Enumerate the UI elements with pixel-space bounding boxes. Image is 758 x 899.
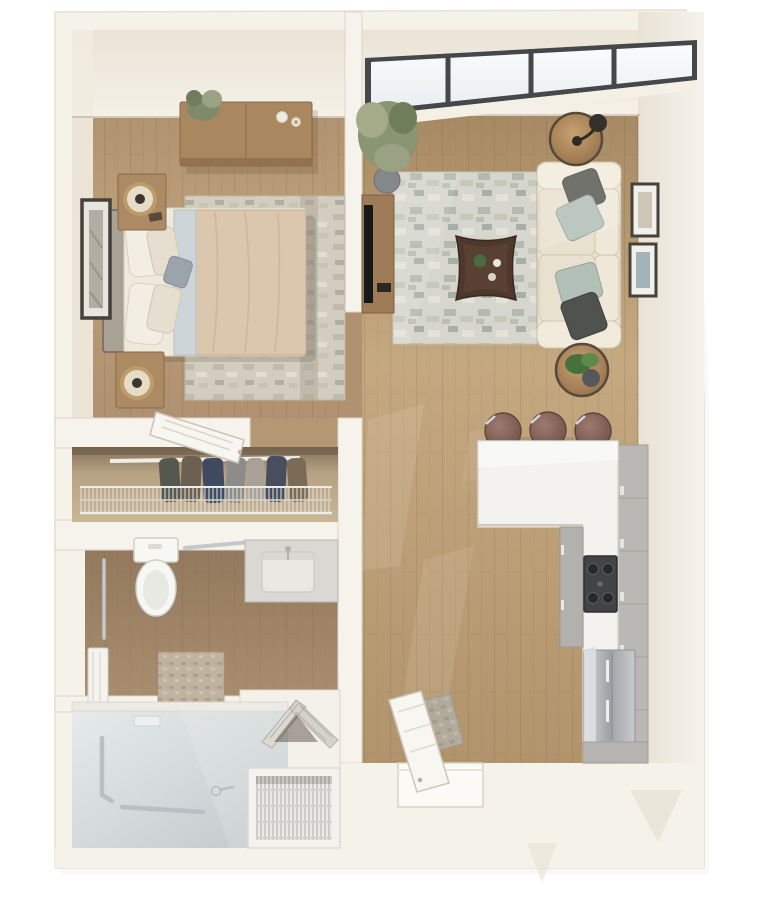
- coffee-table-top: [463, 243, 509, 293]
- vanity-group: [245, 540, 338, 602]
- table-cup: [493, 259, 501, 267]
- dresser-front-edge: [180, 158, 312, 166]
- fridge-handle: [606, 660, 609, 682]
- bath-mat: [158, 652, 224, 710]
- alcove-shadow: [256, 776, 332, 784]
- coffee-table-group: [456, 236, 516, 300]
- lamp-base: [572, 136, 582, 146]
- burner: [588, 564, 599, 575]
- table-cup: [488, 273, 496, 281]
- table-plant-leaf: [581, 353, 599, 367]
- flush-button: [148, 544, 162, 549]
- wall-art: [636, 252, 650, 288]
- dresser-group: [180, 90, 318, 174]
- wire-shelves: [256, 776, 332, 840]
- floor-plan-rendering: [0, 0, 758, 899]
- bedroom-art-group: [82, 200, 110, 318]
- bottom-wall-left: [55, 848, 345, 868]
- toilet-group: [134, 538, 178, 616]
- burner: [603, 593, 614, 604]
- nightstand-bottom-group: [116, 352, 164, 408]
- tv: [364, 205, 373, 303]
- wall-art: [638, 192, 652, 228]
- floor-plan-stage: [0, 0, 758, 899]
- plant-leaves: [374, 144, 410, 172]
- side-table-bottom-group: [556, 344, 608, 396]
- towel-group: [88, 648, 108, 710]
- plant-leaves: [356, 102, 388, 138]
- media-box: [377, 283, 391, 292]
- wire-shelving-unit: [248, 768, 340, 848]
- candle: [277, 112, 288, 123]
- tv-console-group: [362, 195, 394, 313]
- lamp-finial: [132, 378, 142, 388]
- cooktop-knob: [598, 582, 603, 587]
- bedroom-living-divider-wall: [345, 12, 362, 312]
- door-hinge: [418, 778, 422, 782]
- duvet: [190, 210, 306, 355]
- shower-curb: [72, 702, 288, 711]
- sofa-group: [537, 162, 621, 348]
- cabinet-handle: [561, 545, 564, 555]
- bedroom-doorway-floor: [250, 418, 345, 448]
- reach-in-closet: [72, 447, 338, 522]
- lamp-finial: [135, 194, 145, 204]
- cooktop-group: [584, 556, 617, 612]
- fridge-open-door: [584, 646, 596, 742]
- hand-shower-head: [212, 787, 221, 796]
- fridge-handle: [606, 700, 609, 722]
- dresser-plant-leaf: [202, 90, 222, 108]
- divider-doorway-floor: [345, 310, 362, 420]
- under-fridge-cabinet: [583, 742, 648, 763]
- burner: [588, 593, 599, 604]
- towel: [88, 648, 108, 710]
- burner: [603, 564, 614, 575]
- nightstand-top-group: [118, 174, 166, 230]
- cabinet-handle: [561, 600, 564, 610]
- shower-shelf: [134, 716, 160, 726]
- refrigerator-group: [584, 646, 635, 742]
- plant-leaves: [389, 102, 417, 134]
- table-plant: [474, 255, 487, 268]
- black-lamp: [589, 114, 607, 132]
- candle-wick: [294, 120, 297, 123]
- toilet-seat: [143, 570, 169, 610]
- toilet-tank: [134, 538, 178, 562]
- door-hinge: [238, 450, 242, 454]
- dresser-plant-leaf: [186, 90, 202, 106]
- hall-side-wall: [338, 418, 362, 763]
